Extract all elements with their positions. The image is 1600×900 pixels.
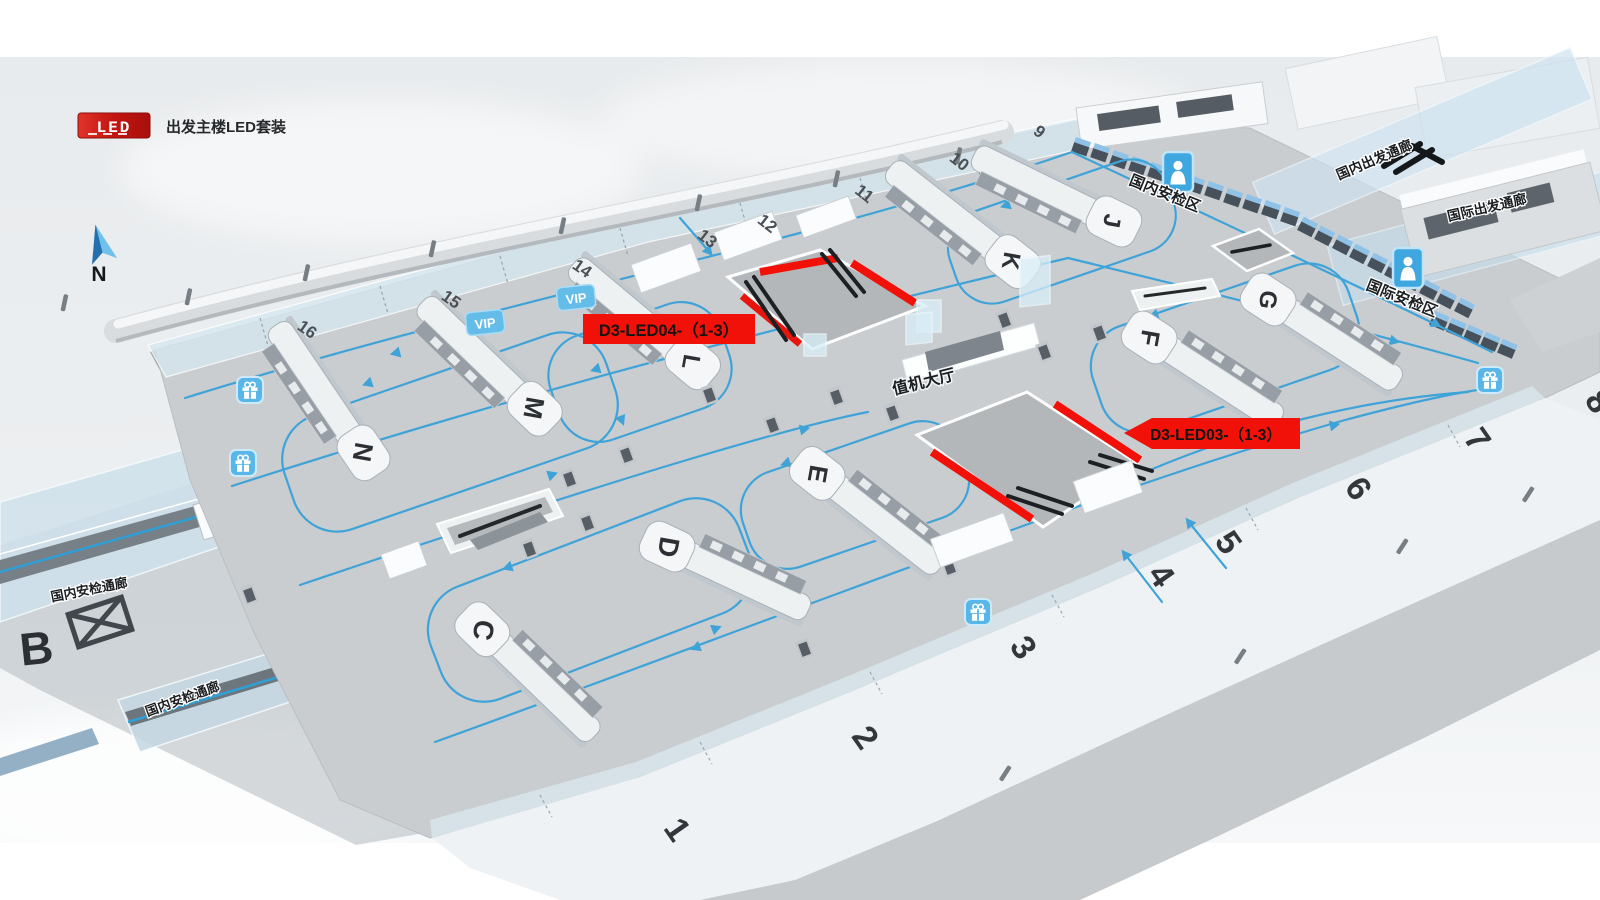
gift-icon	[965, 599, 991, 625]
vip-badge: VIP	[465, 309, 505, 336]
vip-badge: VIP	[556, 284, 596, 311]
legend-title: 出发主楼LED套装	[166, 118, 287, 136]
security-person-icon	[1393, 248, 1423, 288]
vip-badge-label: VIP	[474, 315, 497, 332]
island-letter-b: B	[17, 620, 55, 675]
gift-icon	[230, 450, 256, 476]
led-sign-d3-led04[interactable]: D3-LED04-（1-3）	[583, 314, 755, 344]
vip-badge-label: VIP	[565, 290, 588, 307]
led-sign-d3-led03[interactable]: D3-LED03-（1-3）	[1124, 418, 1300, 449]
compass-north-label: N	[91, 263, 106, 286]
gift-icon	[1477, 367, 1503, 393]
led-sign-label: D3-LED04-（1-3）	[599, 320, 739, 340]
led-sign-label: D3-LED03-（1-3）	[1150, 426, 1282, 444]
terminal-map-canvas: B C D E F G J K L M N 1 2 3 4 5 6 7 8 9 …	[0, 0, 1600, 900]
terminal-ad-map-page: B C D E F G J K L M N 1 2 3 4 5 6 7 8 9 …	[0, 0, 1600, 900]
led-badge-dashes	[88, 133, 127, 135]
gift-icon	[237, 377, 263, 403]
glass-lift	[804, 334, 826, 356]
glass-lift	[906, 312, 932, 345]
